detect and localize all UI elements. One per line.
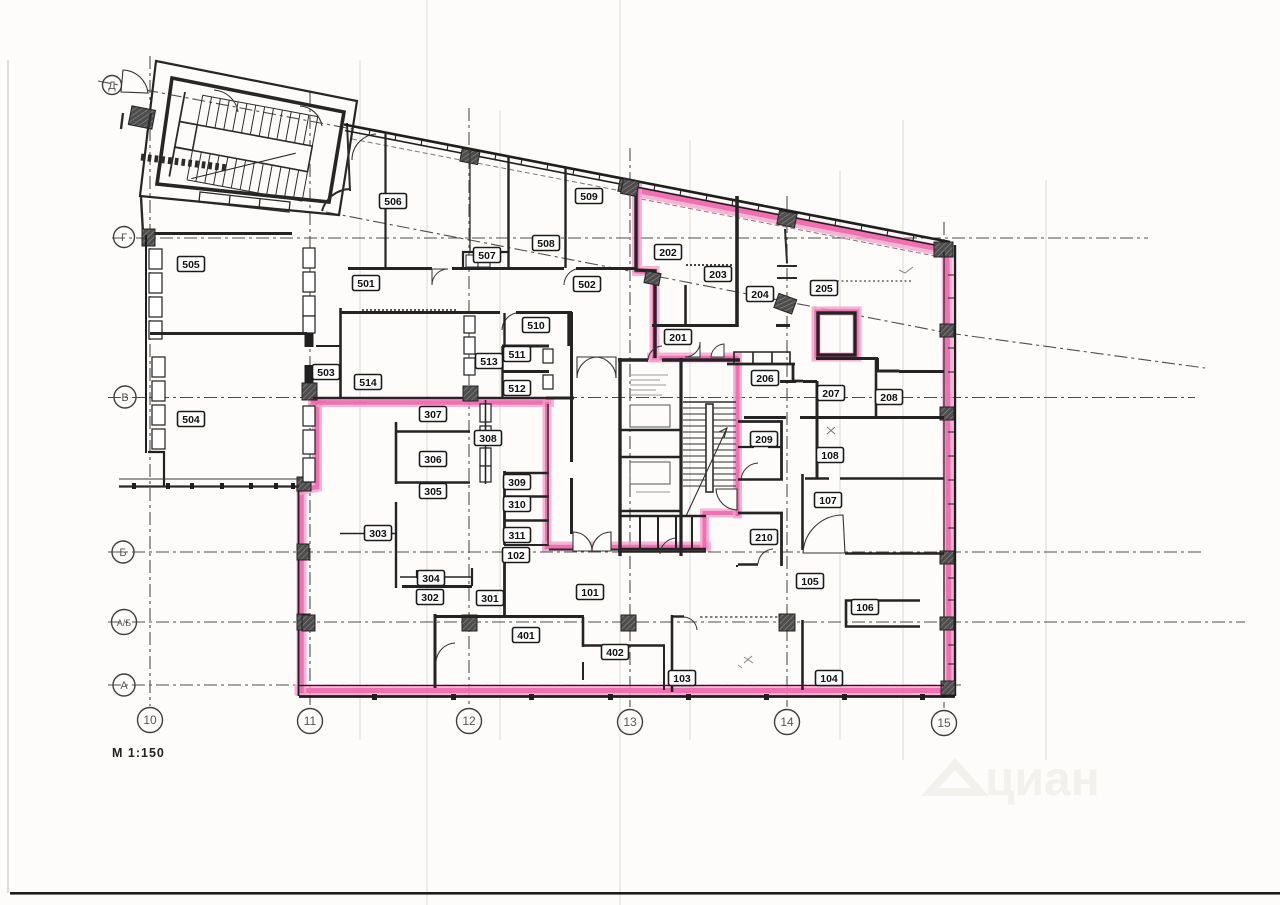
svg-text:501: 501 xyxy=(357,278,375,290)
svg-text:503: 503 xyxy=(317,367,335,379)
svg-text:505: 505 xyxy=(182,259,200,271)
svg-text:206: 206 xyxy=(756,373,774,385)
svg-text:203: 203 xyxy=(709,269,727,281)
svg-text:Г: Г xyxy=(121,232,127,244)
svg-text:310: 310 xyxy=(508,499,526,511)
svg-text:401: 401 xyxy=(517,630,535,642)
svg-text:308: 308 xyxy=(479,433,497,445)
svg-text:205: 205 xyxy=(815,283,833,295)
svg-text:А: А xyxy=(120,680,128,692)
svg-text:А/Б: А/Б xyxy=(117,618,132,628)
svg-text:М 1:150: М 1:150 xyxy=(112,746,165,760)
svg-text:402: 402 xyxy=(606,647,624,659)
svg-text:104: 104 xyxy=(820,673,838,685)
svg-text:208: 208 xyxy=(880,392,898,404)
svg-text:202: 202 xyxy=(659,247,677,259)
svg-text:102: 102 xyxy=(507,550,525,562)
svg-text:302: 302 xyxy=(421,592,439,604)
svg-text:101: 101 xyxy=(581,587,599,599)
svg-text:108: 108 xyxy=(821,450,839,462)
svg-text:304: 304 xyxy=(422,573,440,585)
svg-text:В: В xyxy=(121,392,128,404)
svg-text:13: 13 xyxy=(623,715,637,729)
svg-text:105: 105 xyxy=(801,576,819,588)
svg-text:10: 10 xyxy=(143,713,157,727)
svg-text:12: 12 xyxy=(462,714,476,728)
svg-text:510: 510 xyxy=(527,320,545,332)
svg-text:201: 201 xyxy=(669,332,687,344)
svg-text:Б: Б xyxy=(119,547,126,559)
svg-text:15: 15 xyxy=(937,716,951,730)
svg-text:Д: Д xyxy=(108,80,116,92)
svg-text:210: 210 xyxy=(755,532,773,544)
svg-text:504: 504 xyxy=(182,414,200,426)
svg-text:301: 301 xyxy=(481,593,499,605)
svg-text:207: 207 xyxy=(822,388,840,400)
svg-text:209: 209 xyxy=(755,434,773,446)
svg-text:204: 204 xyxy=(751,289,769,301)
svg-text:507: 507 xyxy=(478,250,496,262)
svg-text:306: 306 xyxy=(424,454,442,466)
svg-text:512: 512 xyxy=(508,383,526,395)
svg-text:11: 11 xyxy=(304,714,317,728)
svg-text:103: 103 xyxy=(673,673,691,685)
svg-text:307: 307 xyxy=(424,409,442,421)
svg-text:311: 311 xyxy=(509,530,526,542)
svg-text:14: 14 xyxy=(780,715,794,729)
svg-text:305: 305 xyxy=(424,486,442,498)
svg-text:513: 513 xyxy=(480,356,498,368)
svg-text:303: 303 xyxy=(369,528,387,540)
svg-text:514: 514 xyxy=(359,377,377,389)
svg-text:511: 511 xyxy=(509,349,526,361)
svg-text:106: 106 xyxy=(856,602,874,614)
svg-text:107: 107 xyxy=(819,495,837,507)
svg-text:309: 309 xyxy=(508,477,526,489)
svg-text:502: 502 xyxy=(578,279,596,291)
svg-text:509: 509 xyxy=(580,191,598,203)
svg-text:506: 506 xyxy=(384,196,402,208)
svg-text:508: 508 xyxy=(537,238,555,250)
svg-text:циан: циан xyxy=(985,753,1100,806)
